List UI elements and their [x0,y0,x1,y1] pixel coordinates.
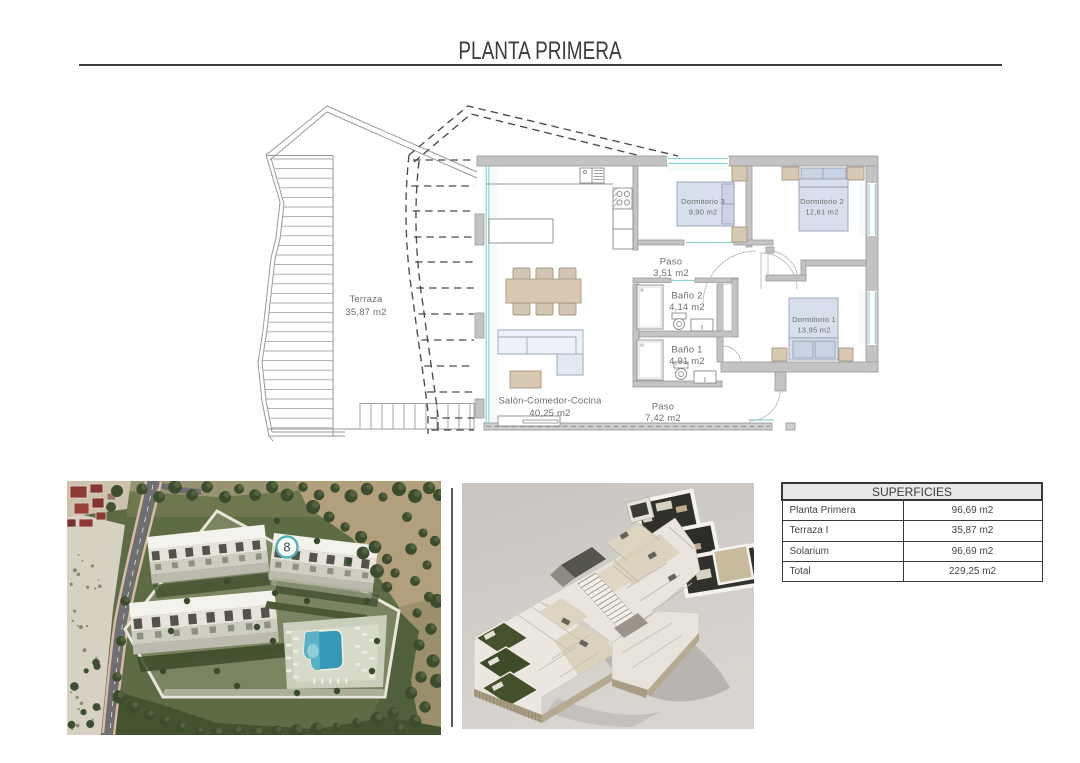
svg-text:Dormitorio 3: Dormitorio 3 [681,197,725,206]
svg-text:Paso: Paso [660,257,682,268]
svg-text:8: 8 [284,541,291,555]
svg-text:Dormitorio 1: Dormitorio 1 [792,315,836,324]
svg-text:Baño 2: Baño 2 [671,291,702,302]
svg-text:13,95 m2: 13,95 m2 [797,326,830,335]
svg-text:4,14 m2: 4,14 m2 [669,302,705,313]
svg-text:12,61 m2: 12,61 m2 [805,208,838,217]
svg-text:7,42 m2: 7,42 m2 [645,413,681,424]
svg-text:35,87 m2: 35,87 m2 [345,307,386,318]
svg-text:Dormitorio 2: Dormitorio 2 [800,197,844,206]
svg-text:40,25 m2: 40,25 m2 [529,408,570,419]
svg-text:Terraza: Terraza [349,294,383,305]
svg-text:Salón-Comedor-Cocina: Salón-Comedor-Cocina [498,396,602,407]
svg-text:Baño 1: Baño 1 [671,345,702,356]
svg-text:3,51 m2: 3,51 m2 [653,268,689,279]
svg-text:Paso: Paso [652,402,674,413]
svg-text:4,91 m2: 4,91 m2 [669,356,705,367]
svg-text:9,90 m2: 9,90 m2 [689,208,718,217]
